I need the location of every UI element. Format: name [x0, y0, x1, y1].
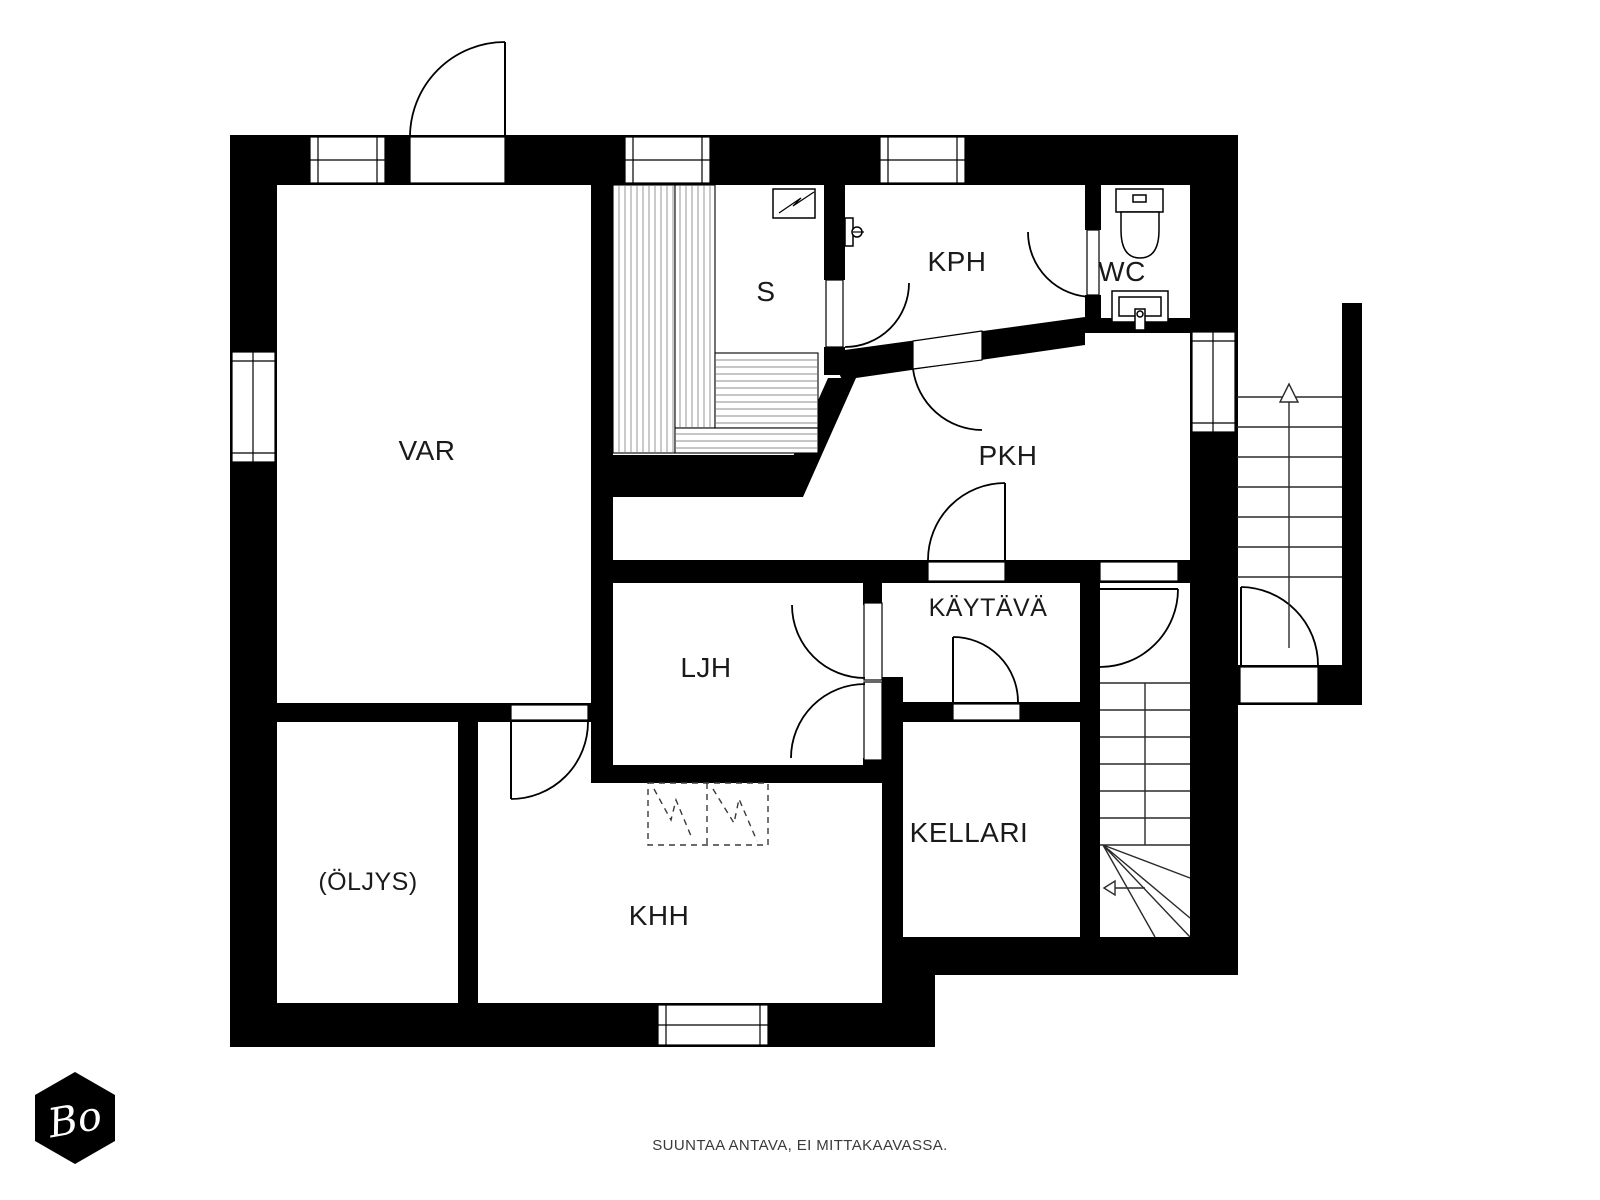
wall-ljh-bottom: [591, 765, 882, 783]
opening-main-entrance: [410, 137, 505, 183]
door-ljh-lower: [791, 684, 865, 758]
stairs-up-arrow-icon: [1280, 384, 1298, 402]
wall-corner-block: [882, 937, 935, 1047]
wall-sauna-east-upper: [824, 185, 845, 280]
window-right-pkh: [1192, 332, 1235, 432]
interior-stair-winders: [1103, 845, 1190, 937]
opening-pkh-lobby: [1100, 562, 1178, 581]
window-top-sauna: [625, 137, 710, 183]
wall-bottom: [230, 1003, 935, 1047]
opening-ljh-lower: [864, 682, 882, 760]
wall-sauna-bottom: [591, 455, 795, 497]
room-label-pkh: PKH: [978, 440, 1037, 471]
window-bottom-khh: [658, 1005, 768, 1045]
wall-oljys-east: [458, 722, 478, 1003]
opening-ljh-upper: [864, 603, 882, 680]
wall-stairs-west: [1080, 583, 1100, 937]
walls: [230, 135, 1362, 1047]
disclaimer-text: SUUNTAA ANTAVA, EI MITTAKAAVASSA.: [652, 1137, 947, 1154]
logo-text: Bo: [44, 1093, 106, 1148]
sauna-stove-icon: [773, 189, 815, 218]
room-label-wc: WC: [1098, 256, 1146, 287]
opening-tower-exterior: [1240, 667, 1318, 703]
door-kaytava-kellari: [953, 637, 1018, 702]
room-label-kaytava: KÄYTÄVÄ: [929, 594, 1048, 622]
door-wc: [1028, 232, 1093, 297]
opening-kph-pkh: [913, 331, 982, 369]
opening-kaytava-kellari: [953, 704, 1020, 720]
door-main-entrance: [410, 42, 505, 137]
opening-var-khh: [511, 705, 588, 720]
door-kph-pkh: [913, 369, 982, 430]
room-label-var: VAR: [399, 435, 456, 466]
door-sauna-kph: [845, 283, 909, 347]
shower-icon: [845, 218, 864, 246]
window-top-var: [310, 137, 385, 183]
window-left-var: [232, 352, 275, 462]
toilet-icon: [1116, 189, 1163, 258]
wall-right: [1190, 135, 1238, 975]
wall-ljh-east-top: [863, 583, 882, 605]
door-tower-exterior: [1241, 587, 1318, 665]
room-label-oljys: (ÖLJYS): [318, 868, 417, 896]
overhead-stairs-dashed-symbol: [648, 783, 768, 845]
wall-left: [230, 135, 277, 1047]
stairs-down-arrow-icon: [1104, 881, 1115, 895]
room-label-s: S: [756, 276, 775, 307]
room-label-ljh: LJH: [680, 652, 731, 683]
interior-staircase: [1100, 683, 1190, 937]
door-openings: [410, 137, 1318, 760]
door-pkh-kaytava: [928, 483, 1005, 560]
wall-ljh-east-bottom: [863, 758, 882, 783]
window-top-kph: [880, 137, 965, 183]
floorplan-page: { "document": { "type": "basement floor …: [0, 0, 1600, 1200]
wall-tower-right: [1342, 303, 1362, 705]
wall-wc-west-upper: [1085, 185, 1101, 230]
sauna-benches: [613, 185, 818, 453]
door-pkh-lobby: [1100, 589, 1178, 667]
wall-kellari-bottom: [882, 937, 1238, 975]
door-var-khh: [511, 722, 588, 799]
opening-pkh-kaytava: [928, 562, 1005, 581]
floorplan-canvas: VAR S KPH WC PKH KÄYTÄVÄ LJH KELLARI (ÖL…: [0, 0, 1600, 1200]
room-label-kph: KPH: [927, 246, 986, 277]
exterior-staircase: [1237, 384, 1342, 648]
room-label-khh: KHH: [629, 900, 690, 931]
opening-sauna-kph: [826, 280, 843, 347]
door-ljh-upper: [792, 605, 865, 678]
room-label-kellari: KELLARI: [910, 817, 1029, 848]
wall-kellari-west: [882, 677, 903, 937]
brand-logo: Bo: [35, 1072, 115, 1164]
